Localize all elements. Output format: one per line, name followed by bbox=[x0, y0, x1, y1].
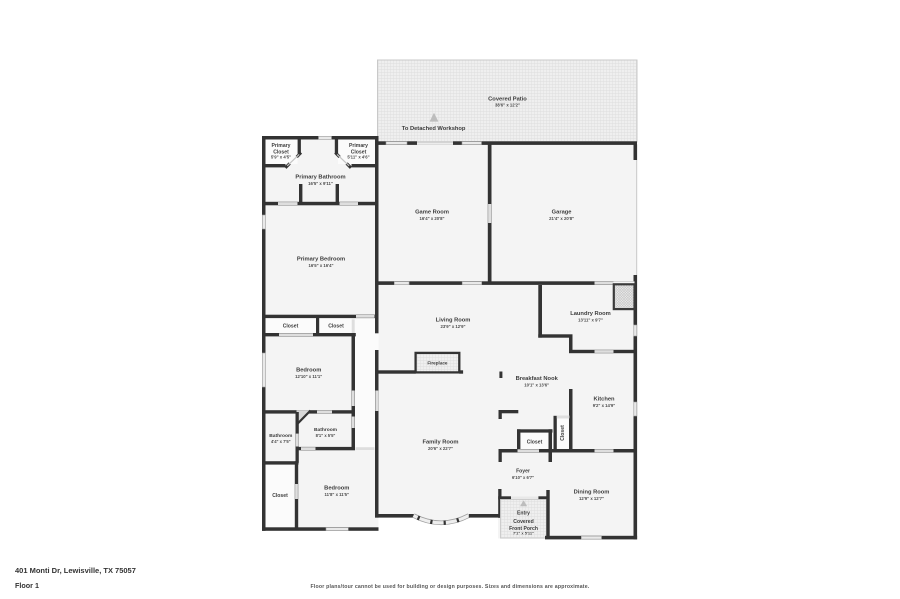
svg-text:Living Room: Living Room bbox=[436, 317, 471, 323]
svg-text:6'10" x 6'7": 6'10" x 6'7" bbox=[512, 475, 534, 480]
svg-text:Garage: Garage bbox=[552, 209, 572, 215]
svg-text:12'9" x 12'7": 12'9" x 12'7" bbox=[579, 496, 604, 501]
svg-text:10'1" x 13'6": 10'1" x 13'6" bbox=[524, 383, 549, 388]
svg-text:Breakfast Nook: Breakfast Nook bbox=[516, 376, 559, 382]
svg-text:20'6" x 22'7": 20'6" x 22'7" bbox=[428, 446, 453, 451]
svg-text:Family Room: Family Room bbox=[422, 439, 458, 445]
svg-text:11'8" x 11'5": 11'8" x 11'5" bbox=[325, 492, 350, 497]
svg-text:Primary: Primary bbox=[272, 143, 291, 149]
svg-text:Primary: Primary bbox=[349, 143, 368, 149]
svg-text:16'5" x 16'4": 16'5" x 16'4" bbox=[309, 263, 334, 268]
svg-text:16'4" x 20'8": 16'4" x 20'8" bbox=[420, 216, 445, 221]
svg-text:12'10" x 11'1": 12'10" x 11'1" bbox=[295, 374, 322, 379]
svg-text:Covered: Covered bbox=[513, 519, 533, 525]
svg-text:Bathroom: Bathroom bbox=[314, 427, 338, 433]
svg-text:5'11" x 4'6": 5'11" x 4'6" bbox=[347, 155, 369, 160]
svg-text:Primary Bedroom: Primary Bedroom bbox=[297, 256, 345, 262]
svg-text:Foyer: Foyer bbox=[516, 468, 530, 474]
svg-text:Dining Room: Dining Room bbox=[574, 489, 610, 495]
svg-text:7'1" x 5'11": 7'1" x 5'11" bbox=[513, 530, 534, 535]
svg-text:8'1" x 5'5": 8'1" x 5'5" bbox=[316, 433, 336, 438]
svg-text:Closet: Closet bbox=[283, 324, 299, 330]
svg-text:Kitchen: Kitchen bbox=[593, 396, 615, 402]
svg-text:Bathroom: Bathroom bbox=[269, 433, 293, 439]
svg-text:Bedroom: Bedroom bbox=[324, 485, 349, 491]
svg-text:13'11" x 9'7": 13'11" x 9'7" bbox=[578, 318, 603, 323]
svg-text:Closet: Closet bbox=[272, 493, 288, 499]
svg-text:Closet: Closet bbox=[560, 425, 566, 441]
svg-text:Floor 1: Floor 1 bbox=[15, 581, 39, 590]
svg-text:Closet: Closet bbox=[527, 440, 543, 446]
svg-text:Fireplace: Fireplace bbox=[427, 361, 448, 366]
svg-text:Bedroom: Bedroom bbox=[296, 367, 321, 373]
svg-text:5'9" x 4'5": 5'9" x 4'5" bbox=[271, 155, 291, 160]
svg-text:Floor plans/tour cannot be use: Floor plans/tour cannot be used for buil… bbox=[311, 584, 590, 590]
svg-text:401 Monti Dr, Lewisville, TX 7: 401 Monti Dr, Lewisville, TX 75057 bbox=[15, 566, 136, 575]
svg-text:16'5" x 9'11": 16'5" x 9'11" bbox=[308, 181, 333, 186]
svg-text:Closet: Closet bbox=[328, 324, 344, 330]
svg-text:9'2" x 14'9": 9'2" x 14'9" bbox=[593, 403, 616, 408]
svg-text:Entry: Entry bbox=[517, 510, 530, 516]
svg-text:Laundry Room: Laundry Room bbox=[570, 311, 611, 317]
svg-text:Game Room: Game Room bbox=[415, 209, 449, 215]
svg-text:To Detached Workshop: To Detached Workshop bbox=[402, 126, 466, 132]
svg-text:Covered Patio: Covered Patio bbox=[488, 97, 527, 103]
svg-text:Primary Bathroom: Primary Bathroom bbox=[295, 174, 345, 180]
svg-text:38'6" x 12'2": 38'6" x 12'2" bbox=[495, 103, 520, 108]
svg-text:23'9" x 12'9": 23'9" x 12'9" bbox=[441, 324, 466, 329]
svg-text:4'4" x 7'5": 4'4" x 7'5" bbox=[271, 439, 291, 444]
svg-text:21'4" x 20'8": 21'4" x 20'8" bbox=[549, 216, 574, 221]
